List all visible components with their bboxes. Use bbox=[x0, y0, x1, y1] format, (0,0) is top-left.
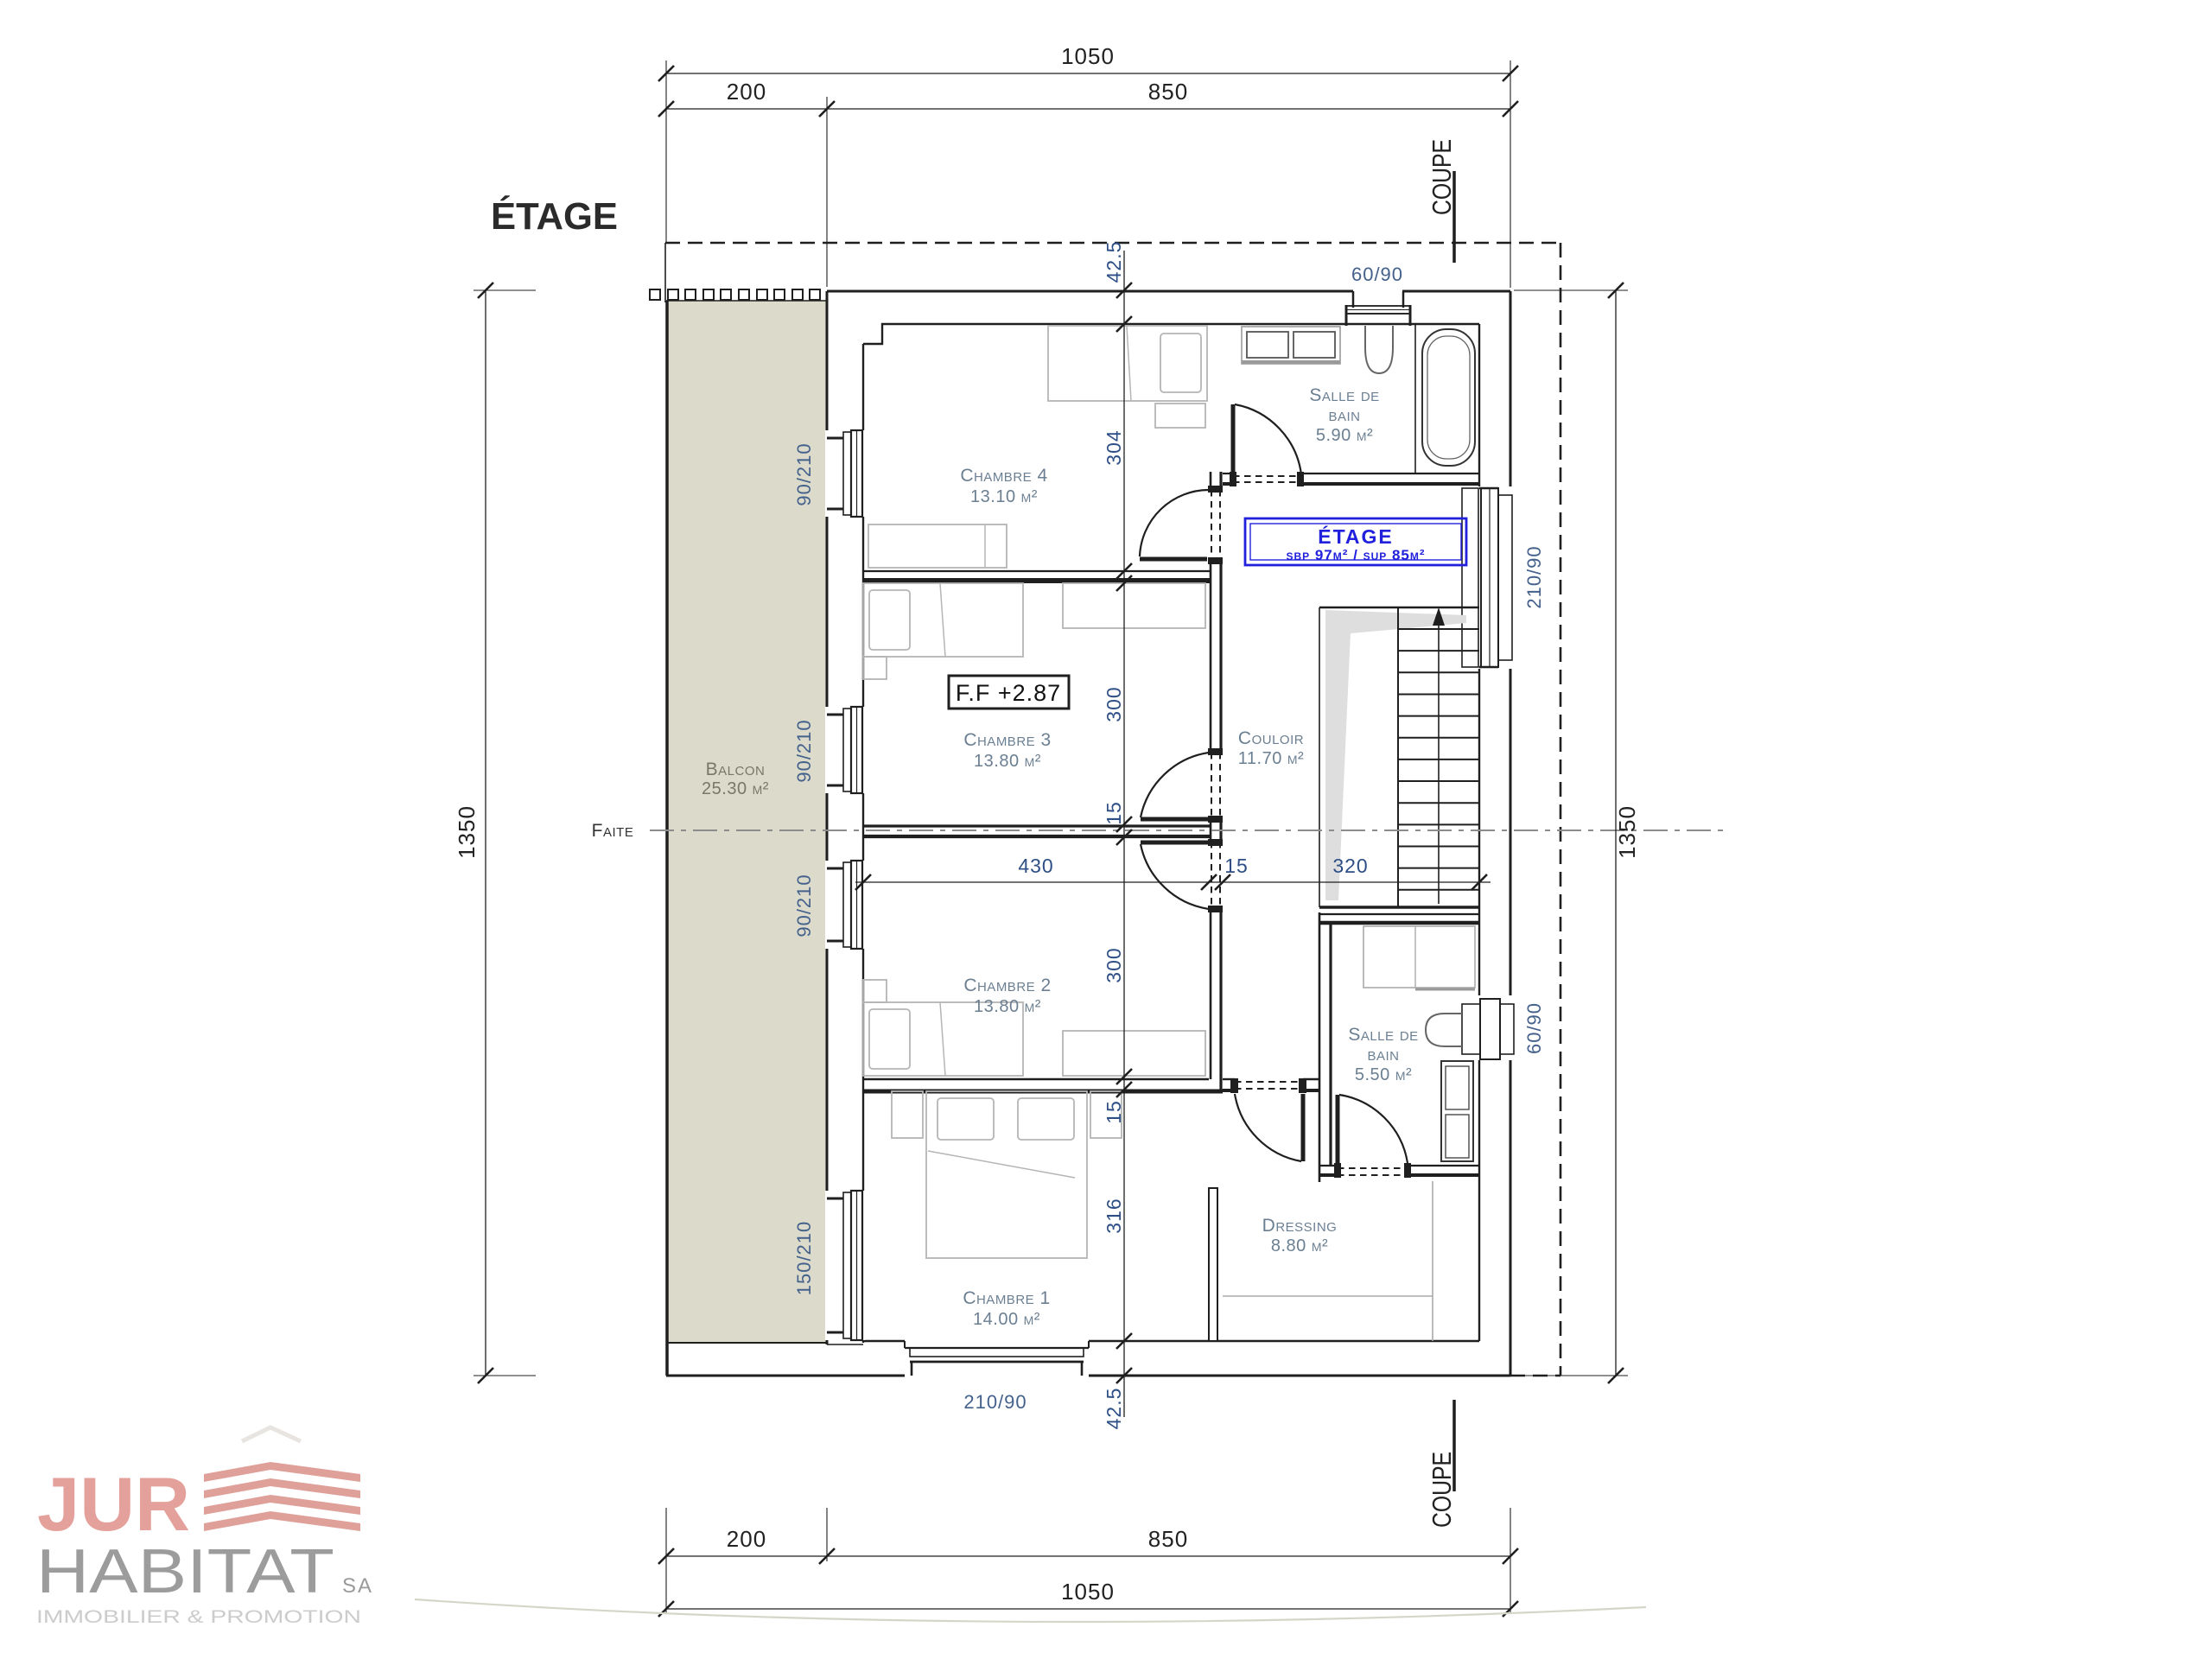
svg-text:ÉTAGE: ÉTAGE bbox=[491, 194, 618, 238]
svg-text:HABITAT: HABITAT bbox=[36, 1537, 334, 1606]
svg-text:90/210: 90/210 bbox=[793, 719, 815, 782]
svg-text:300: 300 bbox=[1103, 686, 1125, 721]
svg-text:Chambre 4: Chambre 4 bbox=[960, 466, 1047, 486]
svg-text:F.F +2.87: F.F +2.87 bbox=[956, 680, 1061, 706]
svg-text:42.5: 42.5 bbox=[1103, 1388, 1125, 1430]
svg-text:COUPE: COUPE bbox=[1427, 139, 1457, 215]
svg-text:90/210: 90/210 bbox=[793, 874, 815, 937]
svg-text:Chambre 1: Chambre 1 bbox=[963, 1288, 1050, 1308]
svg-text:316: 316 bbox=[1103, 1198, 1125, 1233]
svg-text:Salle de: Salle de bbox=[1348, 1025, 1418, 1045]
svg-text:5.50 m²: 5.50 m² bbox=[1355, 1065, 1412, 1084]
svg-text:IMMOBILIER & PROMOTION: IMMOBILIER & PROMOTION bbox=[36, 1607, 361, 1627]
svg-text:13.80 m²: 13.80 m² bbox=[974, 752, 1041, 771]
svg-text:300: 300 bbox=[1103, 947, 1125, 982]
svg-text:sbp 97m² / sup 85m²: sbp 97m² / sup 85m² bbox=[1286, 547, 1425, 563]
svg-text:210/90: 210/90 bbox=[1523, 545, 1545, 608]
svg-text:320: 320 bbox=[1332, 855, 1368, 877]
svg-text:bain: bain bbox=[1367, 1045, 1399, 1065]
svg-text:14.00 m²: 14.00 m² bbox=[973, 1310, 1040, 1329]
svg-text:ÉTAGE: ÉTAGE bbox=[1318, 524, 1394, 548]
svg-text:Balcon: Balcon bbox=[706, 760, 766, 779]
svg-text:200: 200 bbox=[727, 79, 766, 105]
svg-text:Couloir: Couloir bbox=[1238, 728, 1304, 748]
svg-text:304: 304 bbox=[1103, 429, 1125, 465]
svg-text:bain: bain bbox=[1328, 405, 1360, 425]
svg-text:11.70 m²: 11.70 m² bbox=[1238, 749, 1304, 768]
svg-text:850: 850 bbox=[1148, 79, 1188, 105]
svg-text:Chambre 3: Chambre 3 bbox=[963, 730, 1051, 750]
svg-text:25.30 m²: 25.30 m² bbox=[702, 779, 769, 798]
svg-text:1350: 1350 bbox=[1614, 805, 1640, 859]
svg-text:210/90: 210/90 bbox=[963, 1391, 1027, 1413]
svg-text:42.5: 42.5 bbox=[1103, 241, 1125, 283]
svg-text:8.80 m²: 8.80 m² bbox=[1271, 1236, 1328, 1255]
svg-text:90/210: 90/210 bbox=[793, 442, 815, 505]
svg-text:15: 15 bbox=[1103, 1100, 1125, 1124]
svg-text:1350: 1350 bbox=[454, 805, 480, 859]
svg-text:Dressing: Dressing bbox=[1262, 1216, 1338, 1236]
svg-text:200: 200 bbox=[727, 1526, 766, 1552]
svg-text:13.80 m²: 13.80 m² bbox=[974, 997, 1041, 1016]
svg-text:SA: SA bbox=[342, 1574, 373, 1598]
svg-text:850: 850 bbox=[1148, 1526, 1188, 1552]
svg-text:430: 430 bbox=[1018, 855, 1053, 877]
svg-text:60/90: 60/90 bbox=[1523, 1002, 1545, 1054]
svg-text:150/210: 150/210 bbox=[793, 1221, 815, 1296]
svg-text:5.90 m²: 5.90 m² bbox=[1316, 426, 1373, 445]
svg-text:Faite: Faite bbox=[592, 821, 634, 841]
svg-text:60/90: 60/90 bbox=[1351, 264, 1403, 285]
svg-text:JUR: JUR bbox=[37, 1461, 190, 1547]
svg-text:COUPE: COUPE bbox=[1427, 1452, 1457, 1528]
svg-text:13.10 m²: 13.10 m² bbox=[970, 487, 1038, 506]
svg-text:15: 15 bbox=[1224, 855, 1249, 877]
svg-text:Salle de: Salle de bbox=[1309, 385, 1379, 405]
svg-text:Chambre 2: Chambre 2 bbox=[963, 976, 1051, 995]
svg-text:1050: 1050 bbox=[1061, 43, 1115, 69]
svg-text:1050: 1050 bbox=[1061, 1579, 1115, 1605]
svg-text:15: 15 bbox=[1103, 801, 1125, 825]
